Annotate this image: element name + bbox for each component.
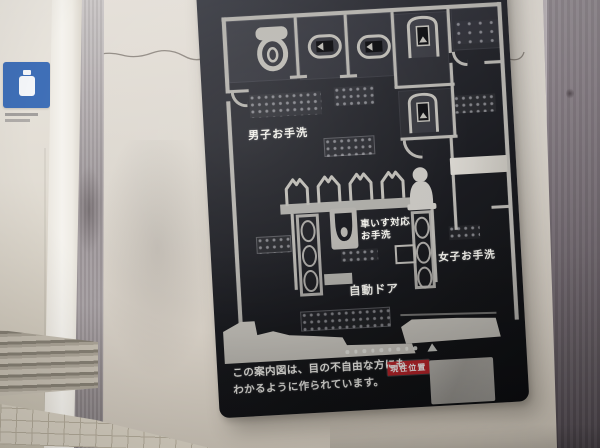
tactile-dot bbox=[362, 349, 366, 353]
tactile-dot bbox=[379, 348, 383, 352]
wall-shadow bbox=[100, 140, 215, 380]
tactile-dot bbox=[345, 350, 349, 354]
worn-plate bbox=[429, 357, 495, 405]
panel-blemish bbox=[566, 88, 574, 99]
tactile-dot bbox=[354, 350, 358, 354]
panel-edge-highlight bbox=[543, 0, 547, 448]
photo-scene: 現在位置 男子お手洗 車いす対応 お手洗 女子お手洗 自動ドア この案内図は、目… bbox=[0, 0, 600, 448]
label-wheelchair-restroom: 車いす対応 お手洗 bbox=[360, 216, 411, 242]
tactile-dot bbox=[396, 347, 400, 351]
label-womens-restroom: 女子お手洗 bbox=[438, 247, 496, 265]
tactile-dot bbox=[413, 346, 417, 350]
position-triangle-icon bbox=[427, 343, 437, 352]
label-automatic-door: 自動ドア bbox=[349, 280, 400, 299]
blue-sign bbox=[3, 62, 50, 108]
guide-map-board: 現在位置 男子お手洗 車いす対応 お手洗 女子お手洗 自動ドア この案内図は、目… bbox=[195, 0, 529, 418]
sign-caption-line bbox=[5, 113, 38, 116]
tactile-dot bbox=[371, 349, 375, 353]
tactile-dot bbox=[388, 348, 392, 352]
metal-wall-panel bbox=[540, 0, 600, 448]
label-mens-restroom: 男子お手洗 bbox=[248, 124, 309, 143]
tactile-dot bbox=[405, 347, 409, 351]
floor-shadow bbox=[330, 424, 600, 448]
sign-caption-line bbox=[5, 119, 30, 122]
worn-metal-areas bbox=[195, 0, 529, 418]
metal-smudge bbox=[76, 165, 102, 255]
extinguisher-pictogram-icon bbox=[19, 76, 35, 96]
